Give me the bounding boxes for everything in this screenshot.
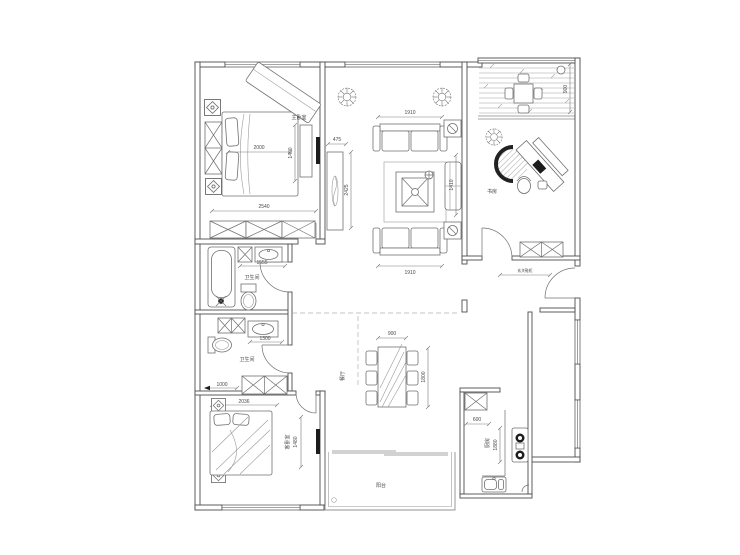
- sofa-top: [373, 124, 447, 151]
- tv: [316, 429, 320, 454]
- radiator-icon: [206, 179, 222, 195]
- cabinet-label: 玄关鞋柜: [517, 268, 532, 273]
- dining-table: [366, 344, 418, 407]
- small-plant-icon: [557, 66, 565, 74]
- room-label: 主卧室: [291, 114, 306, 121]
- wardrobe-bottom: [210, 221, 315, 238]
- room-dining: 餐厅 900 1800: [339, 331, 430, 409]
- master-bed: [222, 112, 298, 196]
- sofa-bottom: [373, 228, 447, 255]
- room-master-bedroom: 主卧室 2000 1400 2540: [205, 62, 322, 238]
- room-bathroom-top: 1555 卫生间: [208, 247, 287, 310]
- terrace-table-set: [505, 74, 542, 113]
- guest-bedroom-door: [296, 393, 316, 413]
- room-bathroom-bottom: 1300 卫生间: [208, 318, 284, 363]
- floor-drain: [332, 498, 337, 503]
- room-label: 客卧室: [284, 434, 291, 449]
- dim-label: 2540: [258, 204, 269, 210]
- cabinet: [218, 318, 245, 333]
- radiator-icon: [205, 100, 221, 116]
- room-living: 475 2425: [326, 88, 461, 276]
- washer-cabinet: [238, 247, 252, 262]
- room-label: 卫生间: [244, 274, 259, 281]
- room-label: 卫生间: [239, 356, 254, 363]
- dim-label: 1910: [404, 270, 415, 276]
- plant-icon: [338, 88, 357, 107]
- hall-cabinet: [242, 376, 287, 394]
- guest-bed: [210, 411, 272, 475]
- dim-label: 475: [333, 137, 342, 143]
- room-label: 餐厅: [339, 371, 346, 381]
- tv-cabinet: [327, 152, 343, 230]
- dim-label: 1480: [293, 436, 299, 447]
- room-label: 厨房: [484, 438, 491, 448]
- dim-label: 900: [563, 85, 569, 94]
- dim-label: 1910: [404, 110, 415, 116]
- room-guest-bedroom: 2036 1480 客卧室: [210, 398, 320, 482]
- dim-label: 2000: [253, 145, 264, 151]
- stool: [538, 181, 547, 189]
- dim-label: 1880: [493, 439, 499, 450]
- washbasin: [248, 321, 278, 337]
- entry-door: [545, 268, 575, 298]
- nightstand: [300, 125, 312, 177]
- coffee-table: [384, 162, 446, 222]
- dim-label: 600: [473, 417, 482, 423]
- wardrobe-column: [205, 122, 222, 174]
- room-label: 阳台: [376, 482, 386, 489]
- toilet-top: [241, 284, 256, 310]
- kitchen-cabinet: [465, 393, 487, 410]
- balcony: 阳台: [325, 451, 455, 510]
- side-table-top: [444, 120, 461, 137]
- dim-label: 1300: [259, 336, 270, 342]
- tv: [316, 137, 320, 164]
- radiator-icon: [211, 398, 225, 412]
- dim-label: 1000: [216, 382, 227, 388]
- dim-label: 2036: [238, 399, 249, 405]
- floor-plan: 主卧室 2000 1400 2540 475 2425: [0, 0, 740, 555]
- bathroom-bottom-door: [262, 345, 290, 373]
- room-study: 书房: [486, 129, 573, 195]
- stove: [512, 428, 528, 462]
- study-door: [482, 228, 512, 258]
- plant-icon: [486, 129, 503, 146]
- entry-cabinet: [520, 242, 563, 257]
- dim-label: 1410: [449, 179, 455, 190]
- toilet-bottom: [208, 337, 232, 353]
- desk-chair: [517, 177, 531, 194]
- dim-label: 900: [388, 331, 397, 337]
- side-table-bottom: [444, 222, 461, 239]
- terrace: 900: [478, 62, 575, 119]
- sink: [482, 477, 506, 492]
- room-label: 书房: [487, 188, 497, 195]
- dim-label: 1800: [421, 371, 427, 382]
- bathtub: [208, 247, 235, 307]
- dim-label: 1400: [288, 147, 294, 158]
- plant-icon: [433, 88, 452, 107]
- room-kitchen: 600 厨房 1880: [464, 393, 529, 492]
- dim-label: 1555: [256, 260, 267, 266]
- bathroom-top-door: [260, 262, 290, 292]
- dim-label: 2425: [344, 184, 350, 195]
- floor-plan-canvas: 主卧室 2000 1400 2540 475 2425: [0, 0, 740, 555]
